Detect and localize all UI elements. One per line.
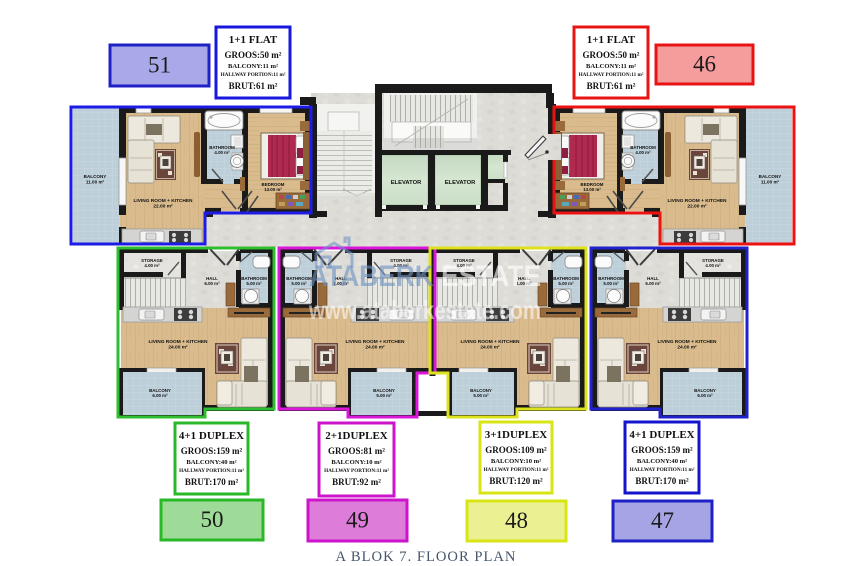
svg-text:1+1 FLAT: 1+1 FLAT — [229, 34, 278, 46]
svg-text:48: 48 — [505, 508, 528, 533]
svg-text:BALCONY:11 m²: BALCONY:11 m² — [228, 63, 278, 70]
svg-text:GROOS:159 m²: GROOS:159 m² — [631, 445, 693, 455]
svg-text:BRUT:61 m²: BRUT:61 m² — [229, 81, 278, 91]
svg-text:BRUT:61 m²: BRUT:61 m² — [587, 81, 636, 91]
svg-text:HALLWAY PORTION:11 m²: HALLWAY PORTION:11 m² — [221, 72, 286, 78]
svg-text:BALCONY11.00 m²: BALCONY11.00 m² — [759, 174, 782, 184]
svg-text:1+1 FLAT: 1+1 FLAT — [587, 34, 636, 46]
svg-text:49: 49 — [346, 508, 369, 533]
svg-text:51: 51 — [148, 53, 171, 78]
svg-text:HALLWAY PORTION:11 m²: HALLWAY PORTION:11 m² — [484, 467, 549, 473]
svg-text:BALCONY:10 m²: BALCONY:10 m² — [331, 459, 381, 466]
svg-text:BALCONY:40 m²: BALCONY:40 m² — [637, 458, 687, 465]
svg-text:GROOS:109 m²: GROOS:109 m² — [485, 445, 547, 455]
svg-text:BRUT:170 m²: BRUT:170 m² — [635, 476, 689, 486]
svg-text:HALLWAY PORTION:11 m²: HALLWAY PORTION:11 m² — [630, 467, 695, 473]
svg-text:3+1DUPLEX: 3+1DUPLEX — [485, 429, 548, 441]
svg-text:4+1 DUPLEX: 4+1 DUPLEX — [629, 429, 694, 441]
svg-text:ELEVATOR: ELEVATOR — [445, 180, 476, 186]
svg-text:BALCONY:40 m²: BALCONY:40 m² — [186, 459, 236, 466]
svg-text:GROOS:159 m²: GROOS:159 m² — [181, 446, 243, 456]
svg-text:46: 46 — [693, 52, 716, 77]
svg-text:BRUT:170 m²: BRUT:170 m² — [185, 477, 239, 487]
svg-text:GROOS:50 m²: GROOS:50 m² — [225, 50, 282, 60]
svg-text:2+1DUPLEX: 2+1DUPLEX — [325, 430, 388, 442]
svg-text:GROOS:81 m²: GROOS:81 m² — [328, 446, 385, 456]
svg-text:BRUT:92 m²: BRUT:92 m² — [332, 477, 381, 487]
svg-text:BEDROOM13.00 m²: BEDROOM13.00 m² — [262, 182, 285, 192]
svg-text:HALLWAY PORTION:11 m²: HALLWAY PORTION:11 m² — [579, 72, 644, 78]
svg-text:4+1 DUPLEX: 4+1 DUPLEX — [179, 430, 244, 442]
svg-text:HALLWAY PORTION:11 m²: HALLWAY PORTION:11 m² — [179, 468, 244, 474]
svg-text:47: 47 — [651, 508, 674, 533]
svg-text:A BLOK 7. FLOOR PLAN: A BLOK 7. FLOOR PLAN — [336, 549, 517, 565]
svg-text:50: 50 — [201, 507, 224, 532]
svg-text:ELEVATOR: ELEVATOR — [391, 180, 422, 186]
svg-text:HALL6.00 m²: HALL6.00 m² — [204, 276, 220, 286]
svg-text:GROOS:50 m²: GROOS:50 m² — [583, 50, 640, 60]
svg-text:ATABERK ESTATE: ATABERK ESTATE — [309, 260, 541, 293]
svg-text:www.ataberkestate.com: www.ataberkestate.com — [308, 295, 541, 325]
svg-text:BEDROOM13.00 m²: BEDROOM13.00 m² — [581, 182, 604, 192]
svg-text:BALCONY:11 m²: BALCONY:11 m² — [586, 63, 636, 70]
svg-text:BALCONY:10 m²: BALCONY:10 m² — [491, 458, 541, 465]
svg-text:HALL6.00 m²: HALL6.00 m² — [645, 276, 661, 286]
svg-text:BRUT:120 m²: BRUT:120 m² — [489, 476, 543, 486]
svg-text:HALLWAY PORTION:11 m²: HALLWAY PORTION:11 m² — [324, 468, 389, 474]
svg-text:BALCONY11.00 m²: BALCONY11.00 m² — [84, 174, 107, 184]
